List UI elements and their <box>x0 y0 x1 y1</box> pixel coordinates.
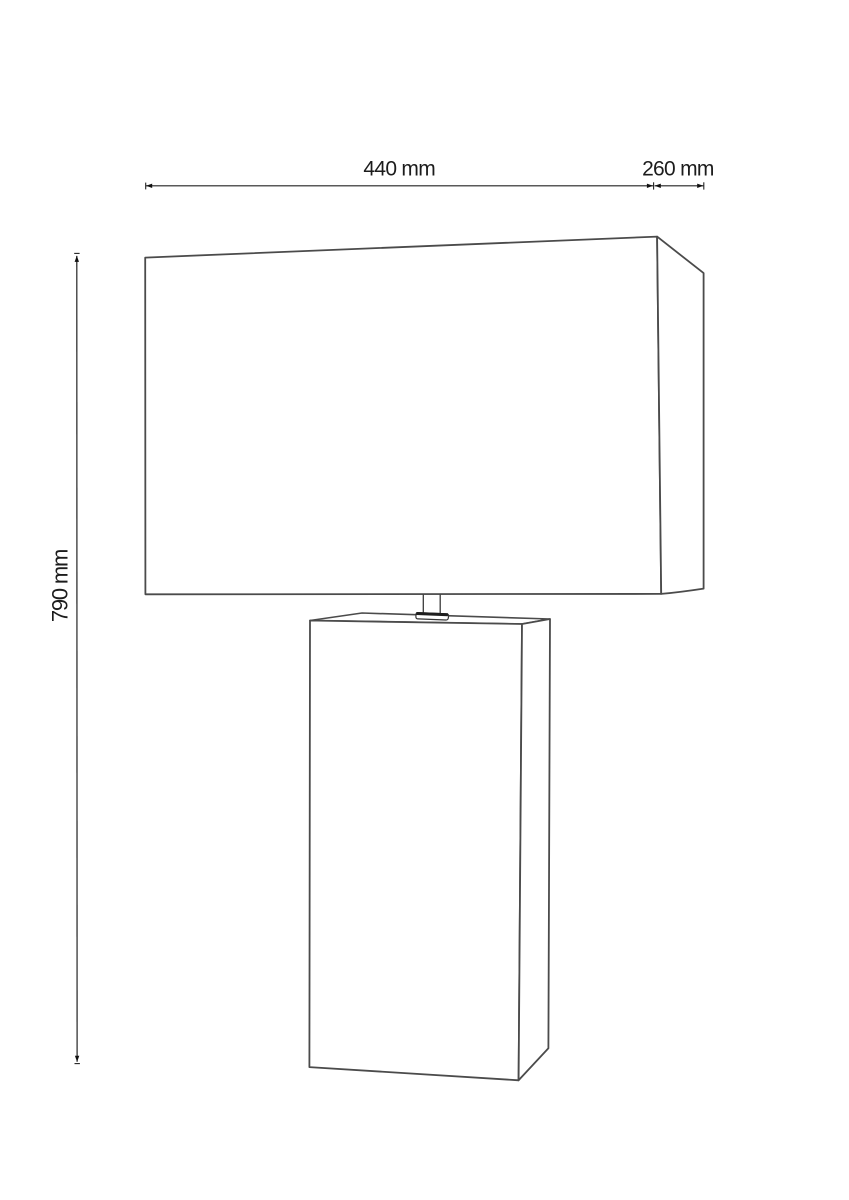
svg-text:260 mm: 260 mm <box>642 158 714 181</box>
svg-text:440 mm: 440 mm <box>363 158 435 181</box>
svg-text:790 mm: 790 mm <box>48 550 73 622</box>
